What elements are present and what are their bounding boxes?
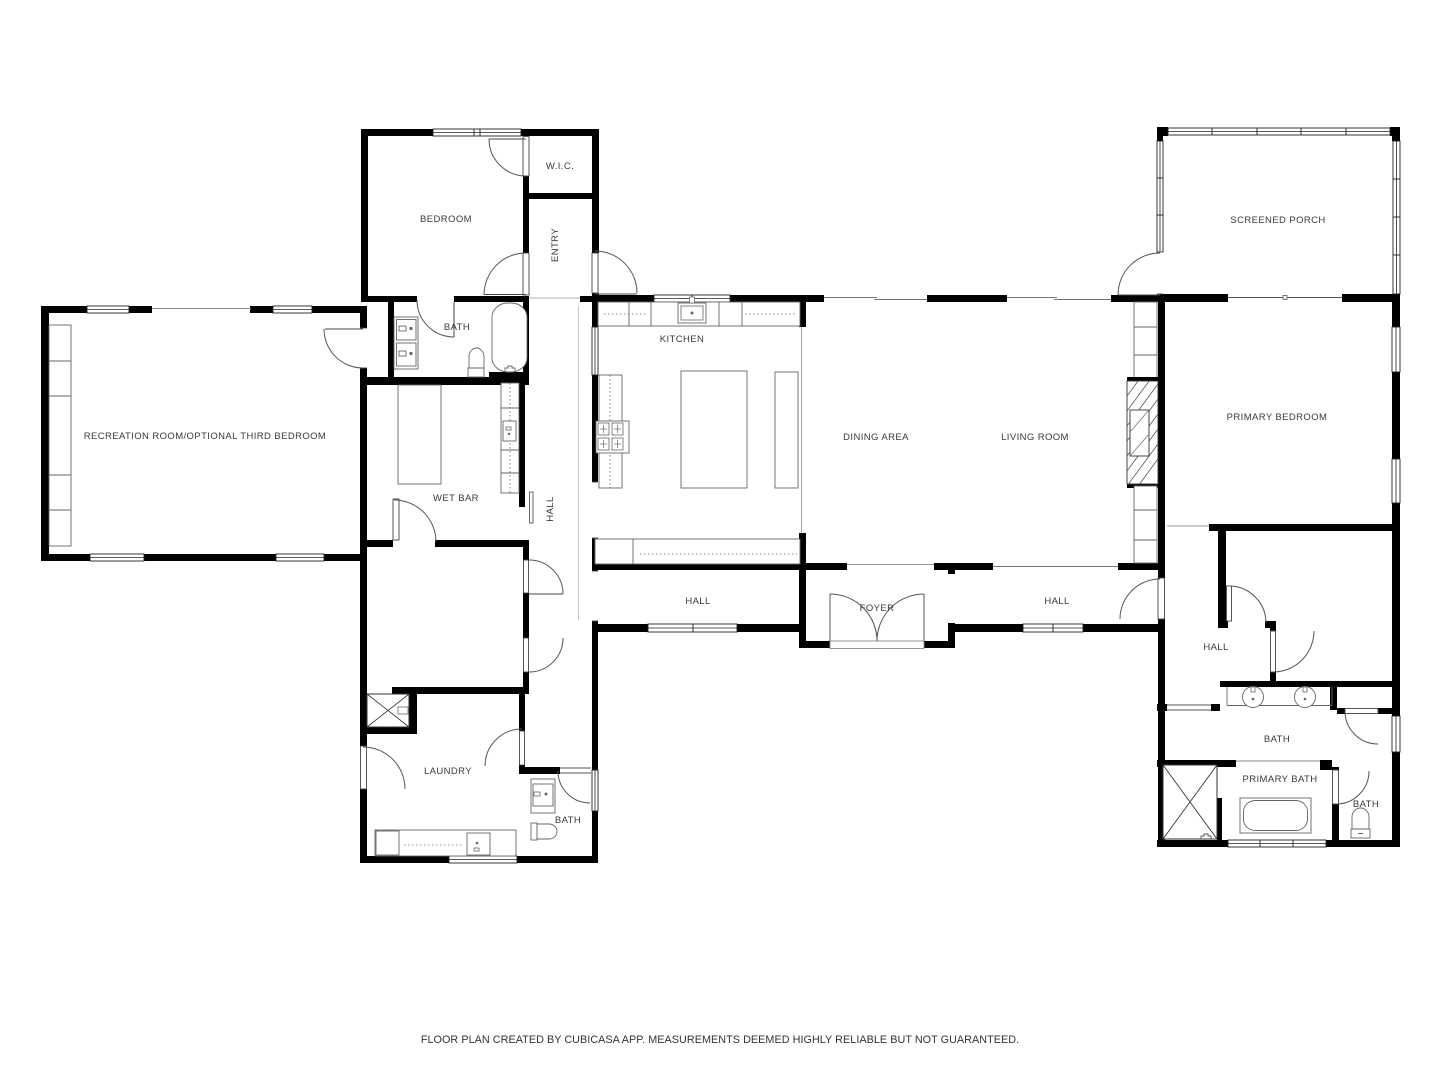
- svg-text:RECREATION ROOM/OPTIONAL THIRD: RECREATION ROOM/OPTIONAL THIRD BEDROOM: [84, 431, 327, 442]
- svg-text:HALL: HALL: [545, 496, 556, 521]
- svg-text:FLOOR PLAN CREATED BY CUBICASA: FLOOR PLAN CREATED BY CUBICASA APP. MEAS…: [421, 1034, 1019, 1046]
- svg-text:WET BAR: WET BAR: [433, 493, 479, 504]
- svg-text:BEDROOM: BEDROOM: [420, 214, 472, 225]
- svg-text:BATH: BATH: [444, 322, 470, 333]
- svg-text:KITCHEN: KITCHEN: [660, 334, 705, 345]
- svg-text:PRIMARY BATH: PRIMARY BATH: [1242, 774, 1317, 785]
- svg-text:SCREENED PORCH: SCREENED PORCH: [1230, 215, 1325, 226]
- svg-text:LAUNDRY: LAUNDRY: [424, 766, 472, 777]
- svg-text:BATH: BATH: [1353, 799, 1379, 810]
- svg-text:HALL: HALL: [1044, 596, 1069, 607]
- svg-text:LIVING ROOM: LIVING ROOM: [1001, 432, 1069, 443]
- svg-text:HALL: HALL: [1203, 642, 1228, 653]
- svg-text:W.I.C.: W.I.C.: [546, 161, 574, 172]
- svg-text:BATH: BATH: [1264, 734, 1290, 745]
- svg-text:ENTRY: ENTRY: [550, 228, 561, 262]
- svg-text:BATH: BATH: [555, 815, 581, 826]
- svg-text:FOYER: FOYER: [860, 603, 895, 614]
- svg-text:PRIMARY BEDROOM: PRIMARY BEDROOM: [1227, 412, 1328, 423]
- svg-text:DINING AREA: DINING AREA: [843, 432, 909, 443]
- svg-text:HALL: HALL: [685, 596, 710, 607]
